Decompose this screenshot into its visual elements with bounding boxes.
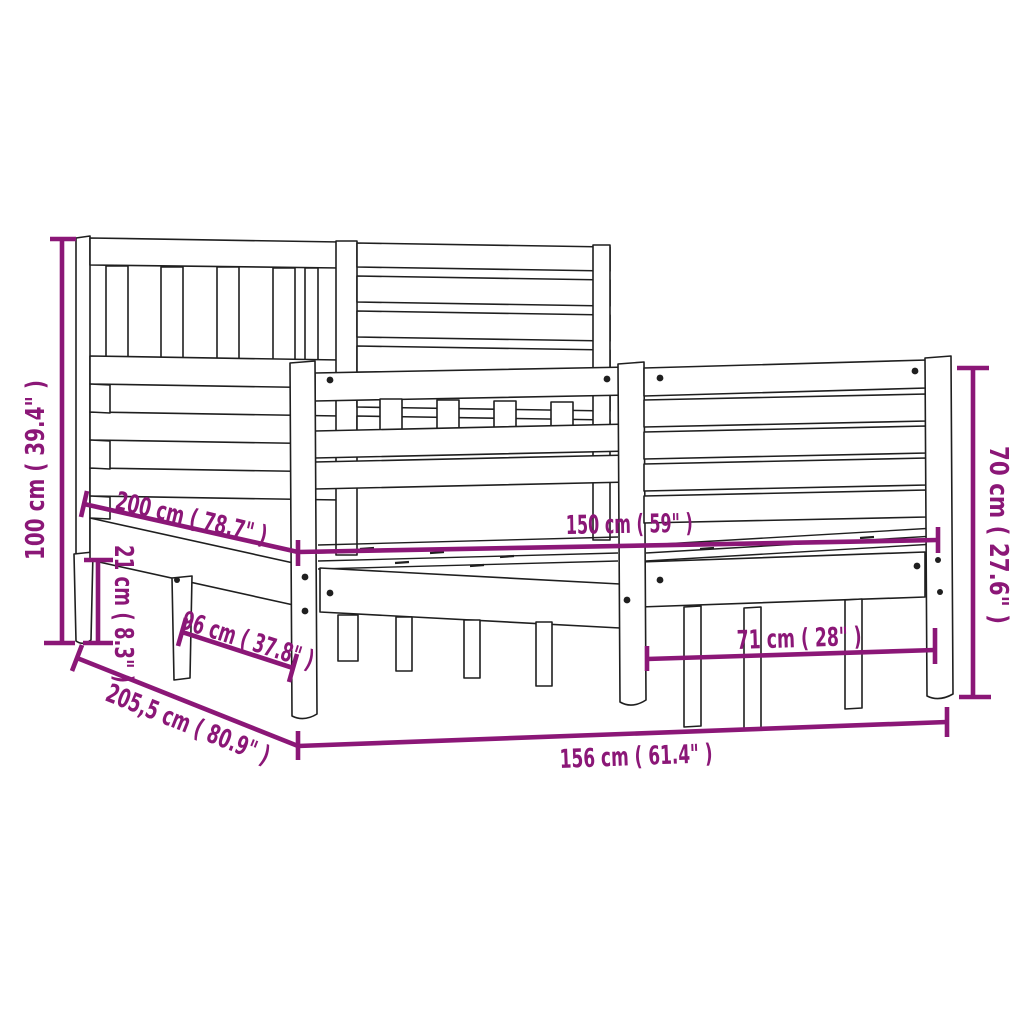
- front-rail-right: [640, 552, 925, 607]
- legs-right: [684, 599, 862, 729]
- dimension-label-headboard-height: 100 cm ( 39.4" ): [21, 380, 51, 560]
- bed-frame-diagram: 100 cm ( 39.4" ) 200 cm ( 78.7" ) 21 cm …: [0, 0, 1024, 1024]
- dimension-label-rail-height: 21 cm ( 8.3" ): [108, 545, 138, 683]
- front-rail-left: [320, 568, 620, 628]
- dimension-label-inner-width: 150 cm ( 59" ): [566, 509, 694, 541]
- dimension-label-foot-inner-width: 71 cm ( 28" ): [736, 622, 862, 656]
- dimension-line-total-width: [298, 707, 947, 746]
- product-dimension-diagram: 100 cm ( 39.4" ) 200 cm ( 78.7" ) 21 cm …: [0, 0, 1024, 1024]
- dimension-label-total-width: 156 cm ( 61.4" ): [559, 739, 713, 775]
- rear-legs-left: [338, 615, 552, 686]
- dimension-label-footboard-height: 70 cm ( 27.6" ): [983, 446, 1013, 624]
